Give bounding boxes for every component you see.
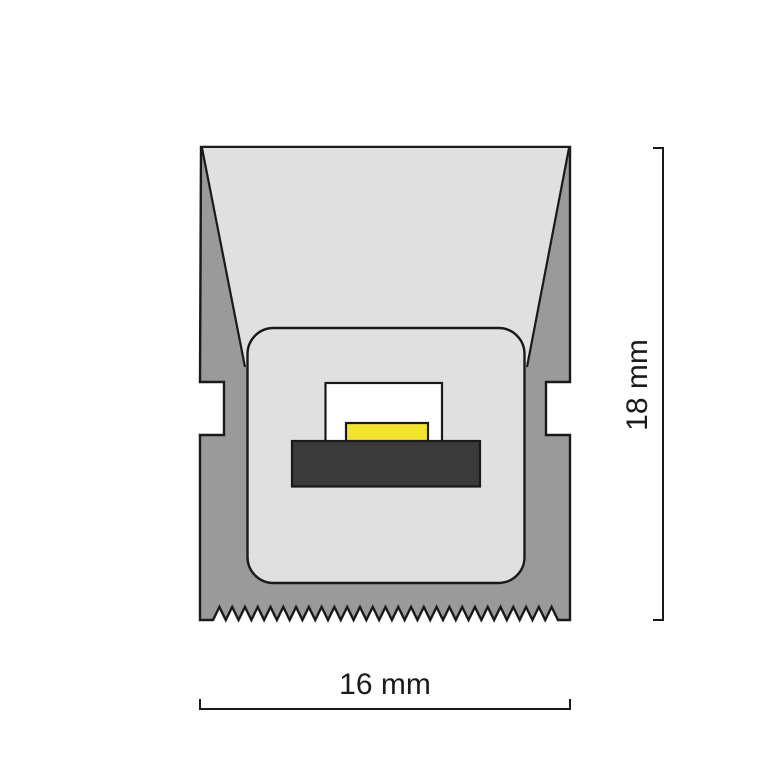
height-dimension-label: 18 mm [621,339,654,431]
diagram-canvas: 18 mm 16 mm [0,0,768,768]
width-dimension-label: 16 mm [339,668,431,701]
pcb-strip [292,441,480,487]
profile-cross-section-diagram: 18 mm 16 mm [0,0,768,768]
